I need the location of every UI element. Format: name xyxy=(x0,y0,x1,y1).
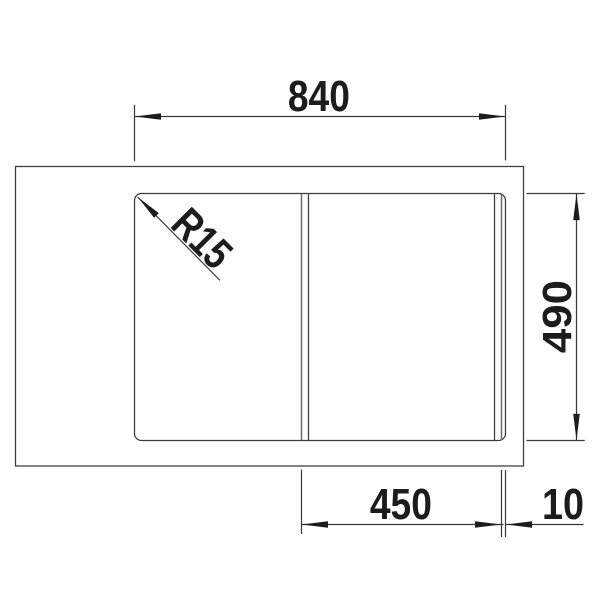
svg-text:R15: R15 xyxy=(162,199,241,278)
svg-text:840: 840 xyxy=(288,73,350,121)
svg-text:10: 10 xyxy=(542,481,584,529)
svg-text:490: 490 xyxy=(534,280,580,353)
svg-text:450: 450 xyxy=(370,481,432,529)
